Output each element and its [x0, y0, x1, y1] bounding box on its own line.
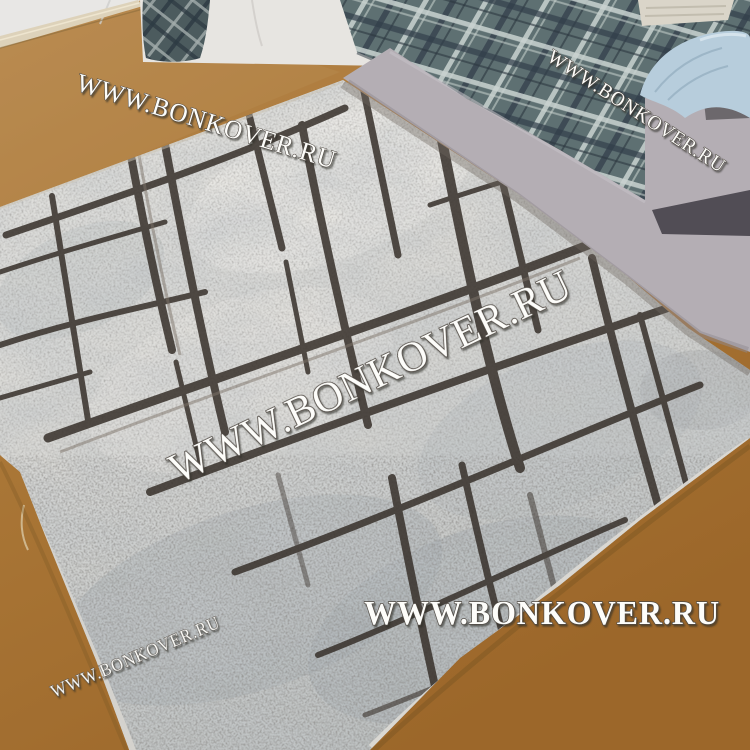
photo-stage: WWW.BONKOVER.RU WWW.BONKOVER.RU WWW.BONK… — [0, 0, 750, 750]
plaid-bundle-shading — [142, 0, 210, 62]
watermark-bottom-center: WWW.BONKOVER.RU — [364, 595, 720, 632]
rug-product-photo: WWW.BONKOVER.RU WWW.BONKOVER.RU WWW.BONK… — [0, 0, 750, 750]
